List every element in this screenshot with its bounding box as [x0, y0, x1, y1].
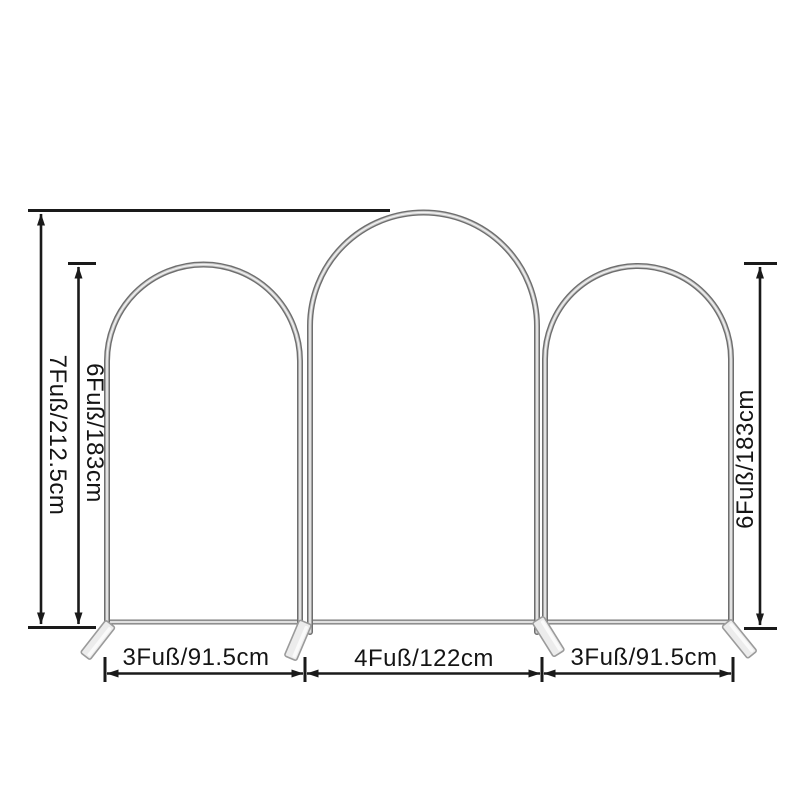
- middle-arch-width-label: 4Fuß/122cm: [354, 645, 494, 673]
- arch-backdrop-stand-diagram: 7Fuß/212.5cm 6Fuß/183cm 6Fuß/183cm 3Fuß/…: [0, 0, 800, 800]
- overall-height-label: 7Fuß/212.5cm: [43, 355, 71, 516]
- right-arch-height-label: 6Fuß/183cm: [732, 389, 760, 529]
- foot-right-outer: [722, 619, 757, 658]
- middle-arch-frame: [310, 212, 537, 632]
- right-arch-width-label: 3Fuß/91.5cm: [571, 644, 718, 672]
- left-arch-frame: [107, 264, 300, 632]
- left-arch-height-label: 6Fuß/183cm: [80, 363, 108, 503]
- foot-left-junction: [284, 620, 311, 661]
- arch-frames-drawing: [0, 0, 800, 800]
- right-arch-frame: [545, 266, 731, 632]
- left-arch-width-label: 3Fuß/91.5cm: [123, 644, 270, 672]
